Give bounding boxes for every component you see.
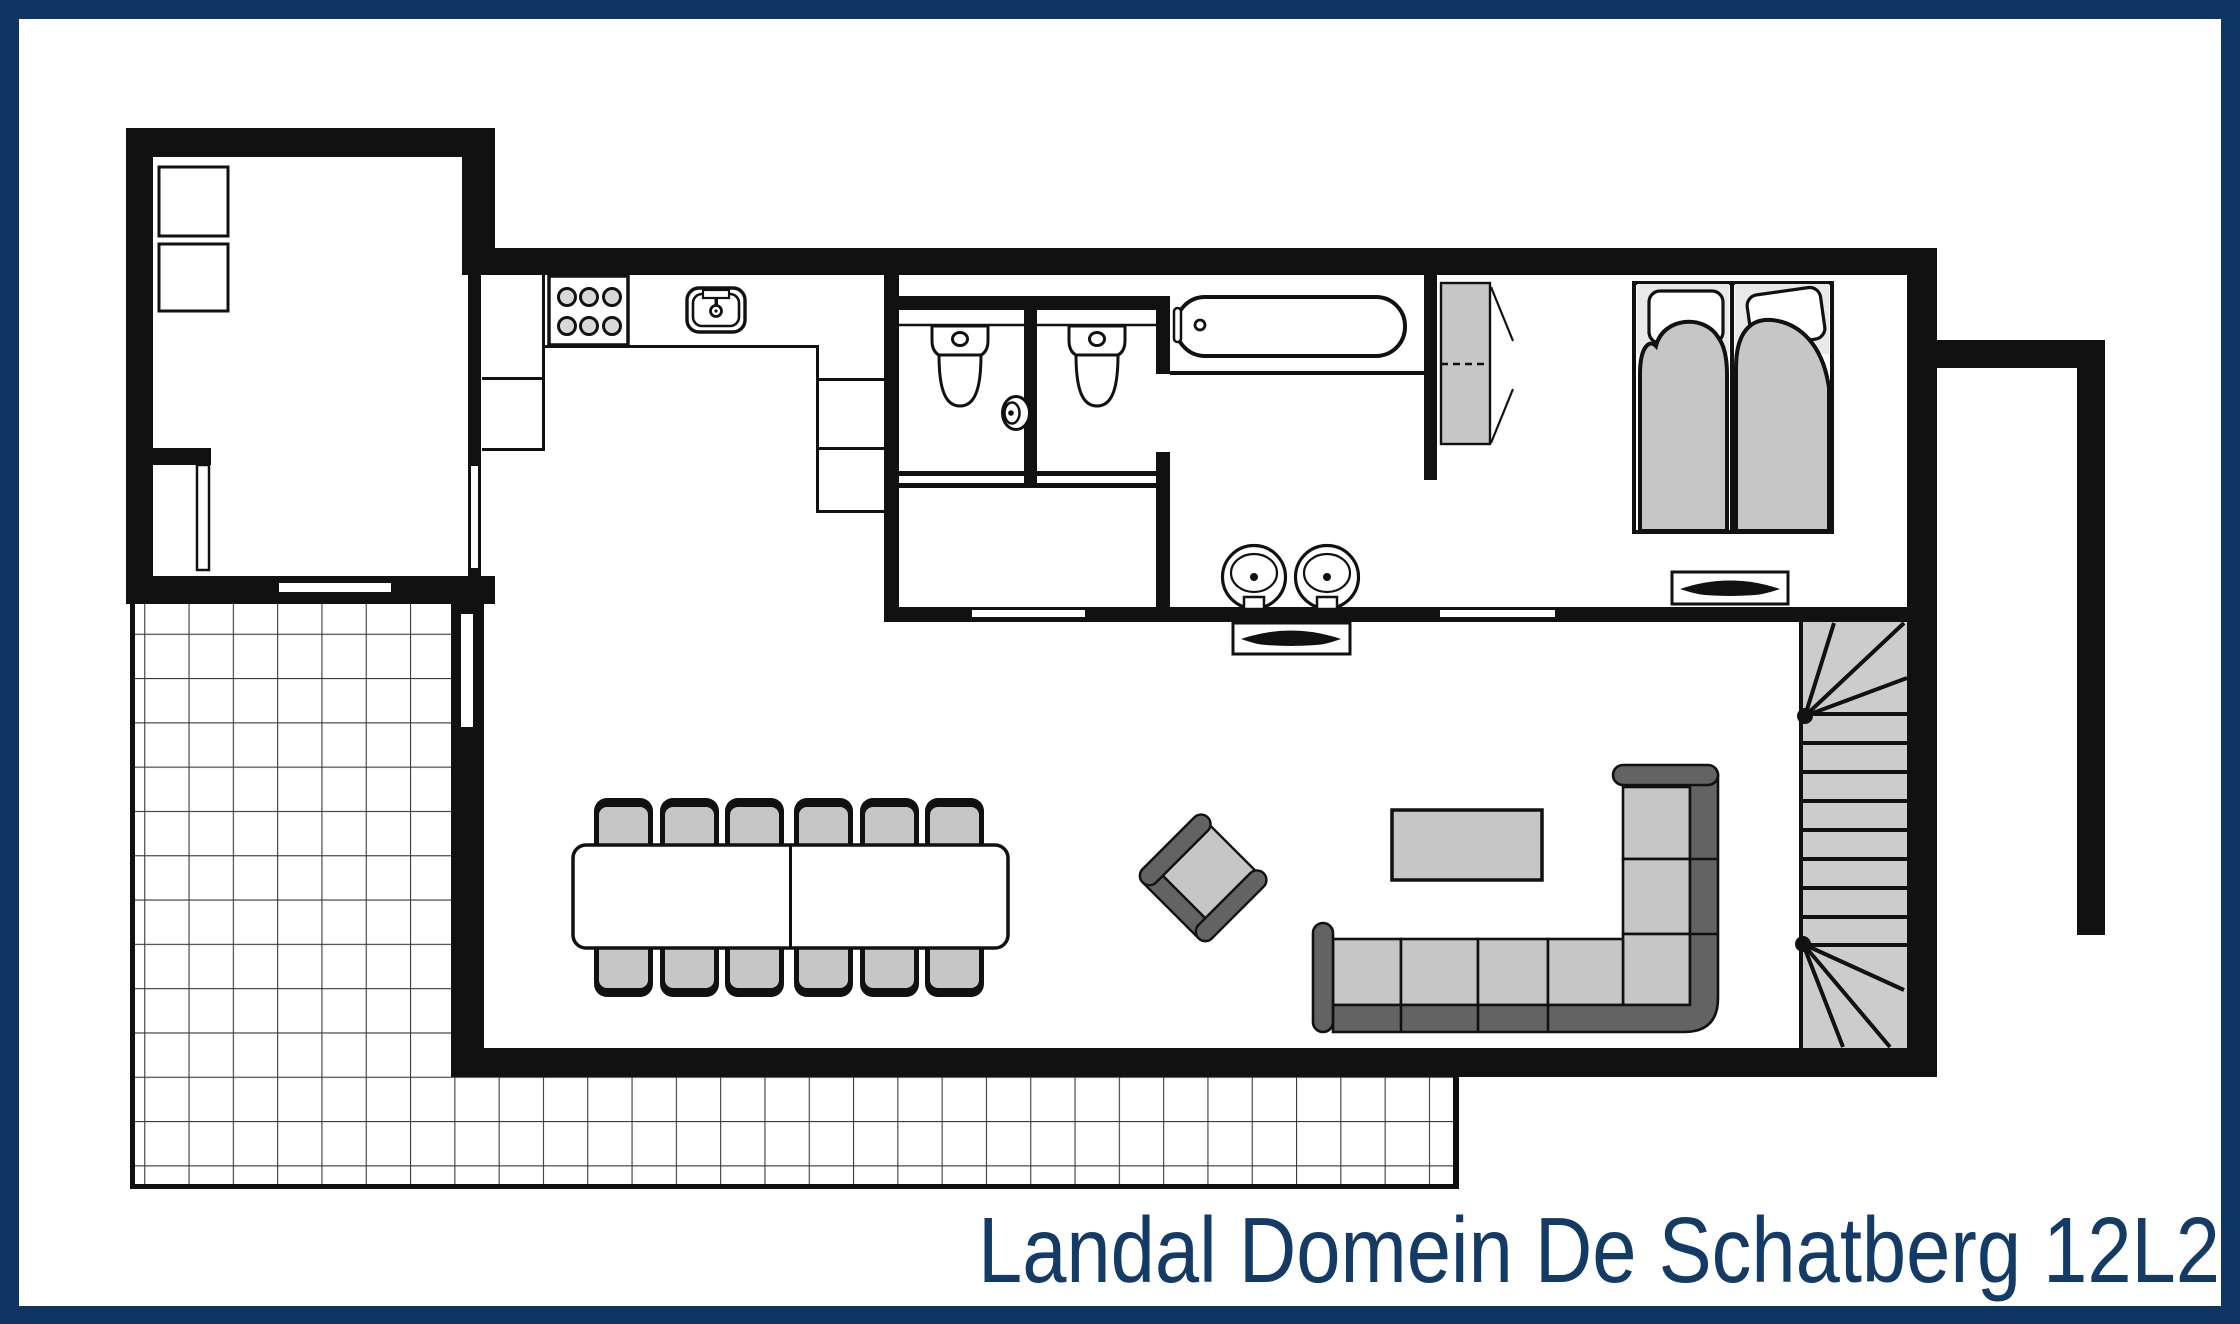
svg-text:Landal Domein De Schatberg 12L: Landal Domein De Schatberg 12L2 — [978, 1198, 2220, 1302]
